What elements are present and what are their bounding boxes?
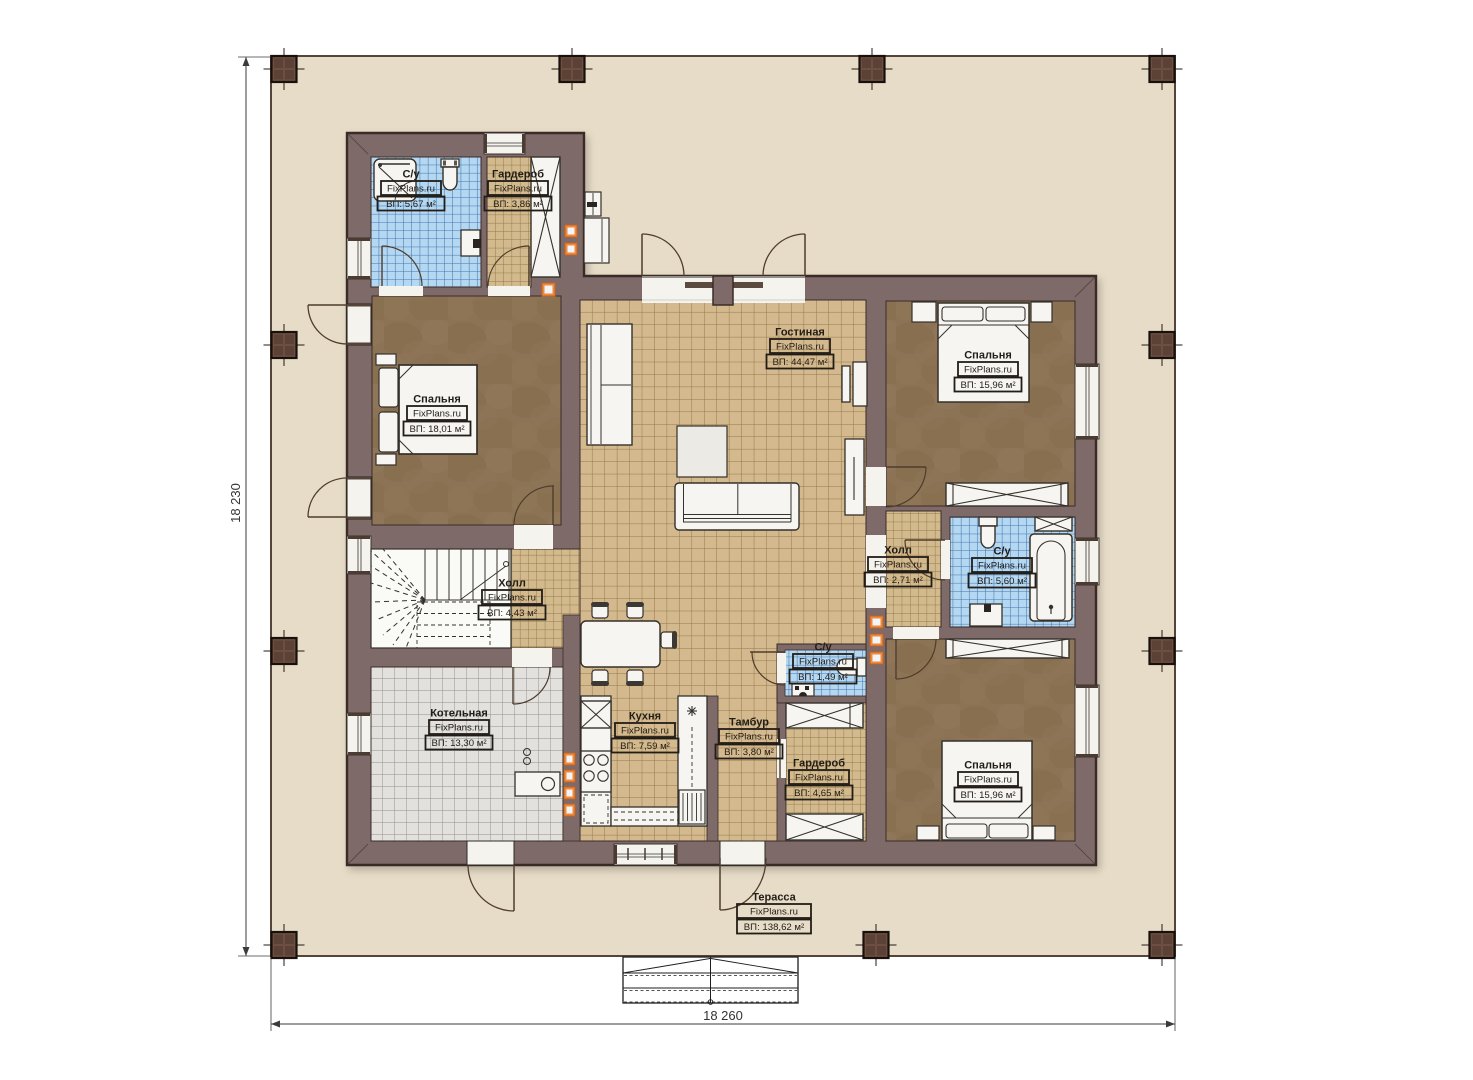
- svg-text:Кухня: Кухня: [629, 711, 661, 723]
- svg-text:18 260: 18 260: [703, 1008, 743, 1023]
- svg-text:Спальня: Спальня: [413, 394, 461, 406]
- svg-text:ВП: 15,96 м²: ВП: 15,96 м²: [960, 790, 1016, 801]
- svg-text:FixPlans.ru: FixPlans.ru: [387, 184, 435, 195]
- svg-text:Холл: Холл: [884, 545, 912, 557]
- svg-text:Терасса: Терасса: [752, 892, 796, 904]
- svg-text:ВП: 4,43 м²: ВП: 4,43 м²: [487, 608, 538, 619]
- svg-text:Холл: Холл: [498, 578, 526, 590]
- svg-text:Котельная: Котельная: [430, 708, 488, 720]
- svg-text:ВП: 15,96 м²: ВП: 15,96 м²: [960, 380, 1016, 391]
- svg-text:FixPlans.ru: FixPlans.ru: [413, 409, 461, 420]
- svg-text:18 230: 18 230: [228, 483, 243, 523]
- svg-text:FixPlans.ru: FixPlans.ru: [795, 773, 843, 784]
- svg-text:FixPlans.ru: FixPlans.ru: [776, 342, 824, 353]
- svg-text:ВП: 5,67 м²: ВП: 5,67 м²: [386, 199, 437, 210]
- svg-text:Гардероб: Гардероб: [793, 758, 845, 770]
- svg-text:FixPlans.ru: FixPlans.ru: [874, 560, 922, 571]
- svg-text:Гостиная: Гостиная: [775, 327, 825, 339]
- svg-text:FixPlans.ru: FixPlans.ru: [725, 732, 773, 743]
- svg-text:Спальня: Спальня: [964, 760, 1012, 772]
- svg-text:FixPlans.ru: FixPlans.ru: [621, 726, 669, 737]
- svg-text:FixPlans.ru: FixPlans.ru: [750, 907, 798, 918]
- svg-text:ВП: 2,71 м²: ВП: 2,71 м²: [873, 575, 924, 586]
- svg-text:С/у: С/у: [402, 169, 420, 181]
- svg-text:FixPlans.ru: FixPlans.ru: [964, 775, 1012, 786]
- svg-text:ВП: 18,01 м²: ВП: 18,01 м²: [409, 424, 465, 435]
- svg-text:Гардероб: Гардероб: [492, 169, 544, 181]
- svg-text:С/у: С/у: [814, 642, 832, 654]
- svg-text:ВП: 5,60 м²: ВП: 5,60 м²: [977, 576, 1028, 587]
- svg-text:ВП: 3,80 м²: ВП: 3,80 м²: [724, 747, 775, 758]
- svg-text:FixPlans.ru: FixPlans.ru: [964, 365, 1012, 376]
- svg-text:ВП: 138,62 м²: ВП: 138,62 м²: [744, 922, 805, 933]
- svg-text:ВП: 4,65 м²: ВП: 4,65 м²: [794, 788, 845, 799]
- svg-text:FixPlans.ru: FixPlans.ru: [488, 593, 536, 604]
- svg-text:ВП: 44,47 м²: ВП: 44,47 м²: [772, 357, 828, 368]
- svg-text:Спальня: Спальня: [964, 350, 1012, 362]
- svg-text:ВП: 13,30 м²: ВП: 13,30 м²: [431, 738, 487, 749]
- svg-text:С/у: С/у: [993, 546, 1011, 558]
- svg-text:ВП: 3,86 м²: ВП: 3,86 м²: [493, 199, 544, 210]
- svg-text:FixPlans.ru: FixPlans.ru: [435, 723, 483, 734]
- svg-text:ВП: 1,49 м²: ВП: 1,49 м²: [798, 672, 849, 683]
- svg-text:FixPlans.ru: FixPlans.ru: [799, 657, 847, 668]
- svg-text:ВП: 7,59 м²: ВП: 7,59 м²: [620, 741, 671, 752]
- svg-text:FixPlans.ru: FixPlans.ru: [494, 184, 542, 195]
- svg-text:Тамбур: Тамбур: [729, 717, 769, 729]
- svg-text:FixPlans.ru: FixPlans.ru: [978, 561, 1026, 572]
